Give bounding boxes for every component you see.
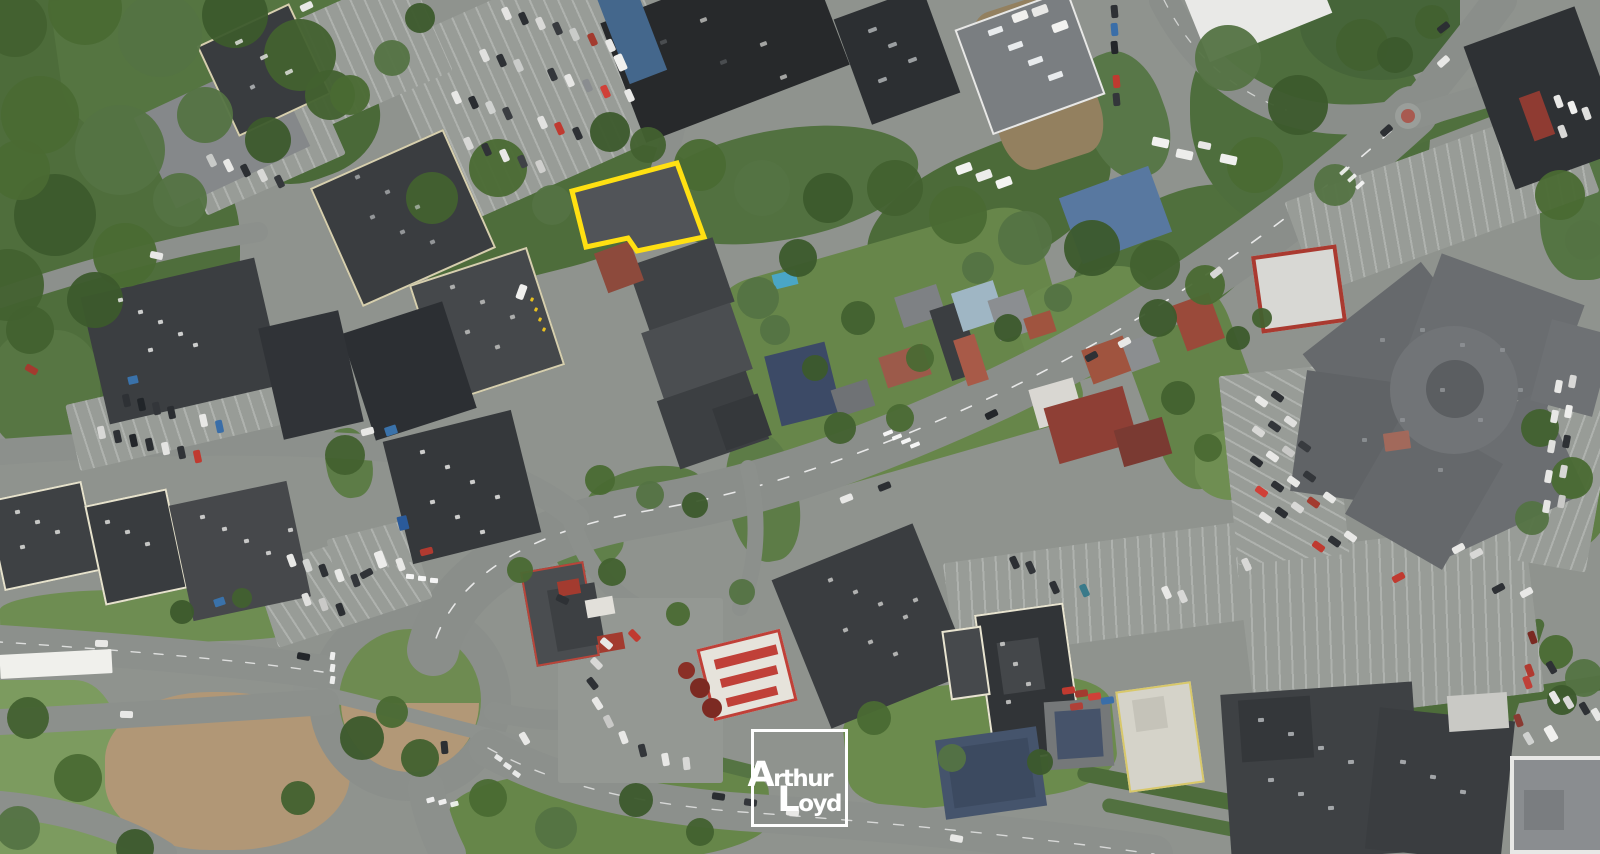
arthur-loyd-logo-text: Arthur Loyd xyxy=(747,759,832,816)
aerial-satellite-photo: Arthur Loyd xyxy=(0,0,1600,854)
arthur-loyd-watermark: Arthur Loyd xyxy=(751,729,848,827)
highlight-layer xyxy=(0,0,1600,854)
